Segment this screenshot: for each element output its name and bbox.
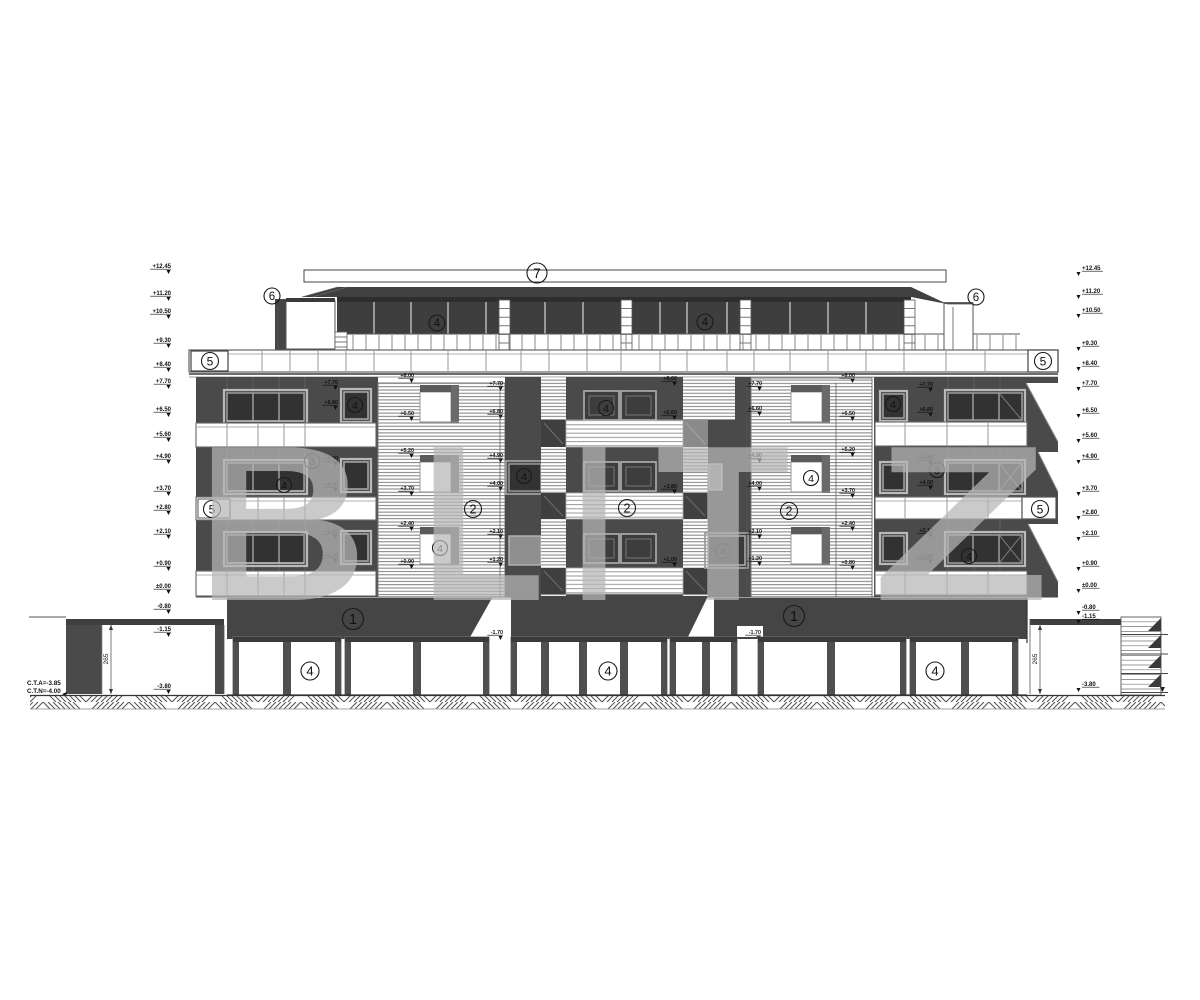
svg-text:6: 6 bbox=[973, 292, 979, 304]
svg-text:4: 4 bbox=[434, 318, 441, 330]
svg-text:I: I bbox=[572, 400, 616, 648]
svg-text:4: 4 bbox=[604, 664, 611, 679]
svg-text:6: 6 bbox=[269, 291, 275, 303]
svg-text:7: 7 bbox=[533, 266, 541, 281]
svg-text:4: 4 bbox=[702, 317, 709, 329]
svg-text:C.T.A=-3.85: C.T.A=-3.85 bbox=[27, 680, 61, 687]
svg-text:Z: Z bbox=[872, 400, 1050, 648]
svg-text:4: 4 bbox=[931, 664, 938, 679]
svg-text:L: L bbox=[420, 400, 545, 648]
svg-text:4: 4 bbox=[808, 473, 814, 485]
svg-text:B: B bbox=[196, 400, 368, 648]
svg-text:5: 5 bbox=[207, 354, 214, 368]
svg-text:T: T bbox=[656, 400, 790, 648]
svg-text:2: 2 bbox=[624, 502, 631, 516]
svg-text:265: 265 bbox=[103, 653, 110, 664]
svg-text:4: 4 bbox=[306, 664, 313, 679]
svg-text:1: 1 bbox=[790, 609, 798, 625]
svg-text:5: 5 bbox=[1040, 354, 1047, 368]
svg-text:265: 265 bbox=[1032, 653, 1039, 664]
svg-text:C.T.N=-4.00: C.T.N=-4.00 bbox=[27, 688, 61, 695]
